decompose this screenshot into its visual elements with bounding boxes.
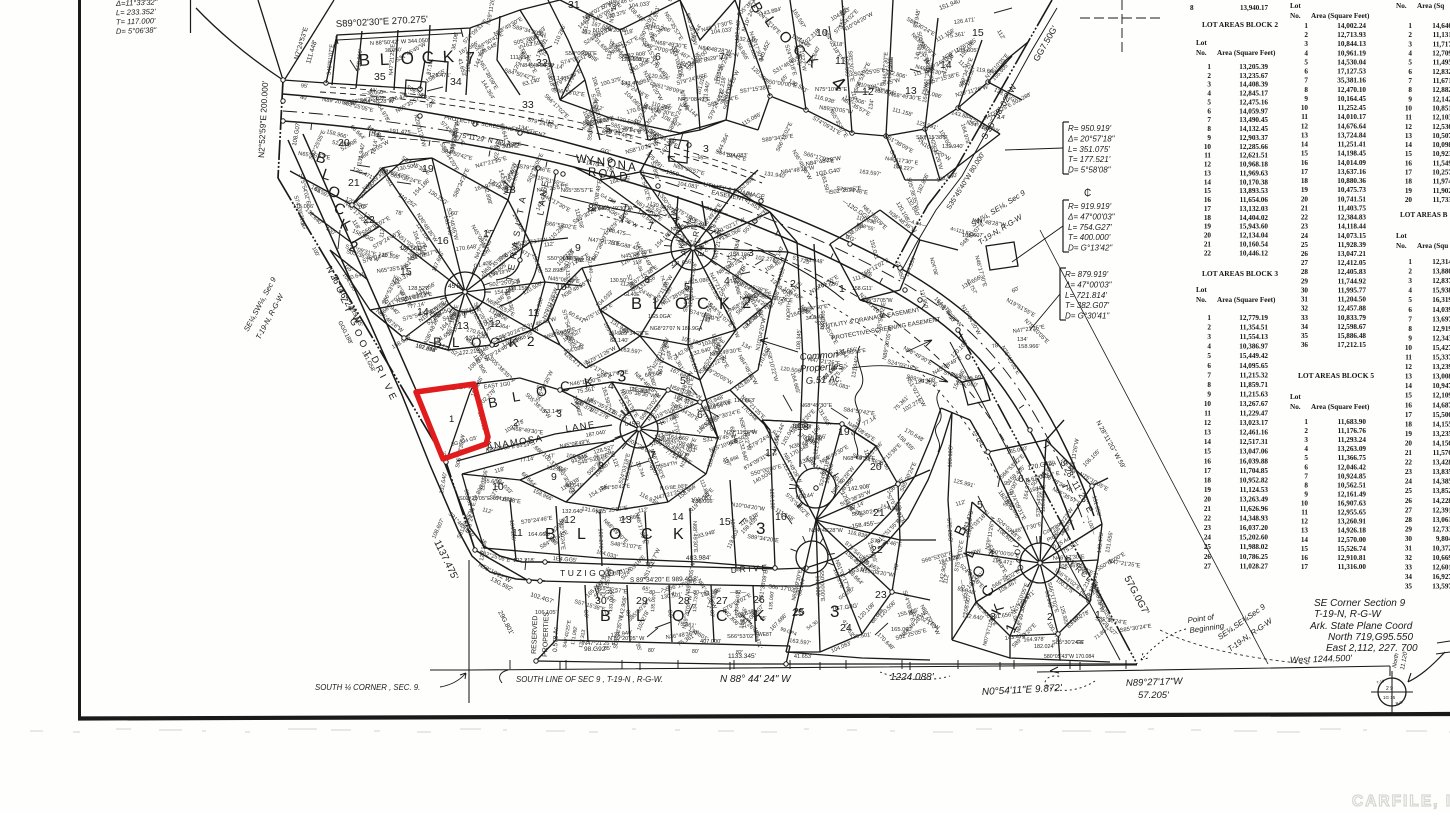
svg-text:7: 7 <box>1408 315 1412 323</box>
svg-text:11,176.76: 11,176.76 <box>1338 427 1367 435</box>
svg-text:Δ= 47°00'03": Δ= 47°00'03" <box>1067 212 1116 221</box>
svg-text:10,475.73: 10,475.73 <box>1337 186 1366 194</box>
svg-text:158.G11': 158.G11' <box>852 286 873 292</box>
svg-text:N89°27'17"W: N89°27'17"W <box>1126 676 1184 689</box>
svg-text:24: 24 <box>1405 478 1413 486</box>
svg-text:15,202.60: 15,202.60 <box>1239 534 1268 542</box>
svg-text:11: 11 <box>1204 410 1211 418</box>
svg-text:Area (Square Feet): Area (Square Feet) <box>1217 296 1276 304</box>
svg-text:78': 78' <box>606 167 614 174</box>
svg-text:L= 754.G27': L= 754.G27' <box>1068 223 1112 232</box>
svg-text:14,010.17: 14,010.17 <box>1337 113 1366 121</box>
svg-text:10,386.97: 10,386.97 <box>1239 343 1268 351</box>
svg-text:11: 11 <box>1405 114 1412 122</box>
svg-text:12: 12 <box>1405 363 1413 371</box>
svg-text:11,229.47: 11,229.47 <box>1240 410 1269 418</box>
svg-text:17,212.15: 17,212.15 <box>1337 341 1366 349</box>
svg-text:12,285.66: 12,285.66 <box>1239 143 1268 151</box>
svg-text:3: 3 <box>703 143 709 155</box>
svg-text:22: 22 <box>1301 214 1309 222</box>
svg-text:Ark. State Plane Coord: Ark. State Plane Coord <box>1309 621 1413 632</box>
svg-text:78': 78' <box>425 103 433 110</box>
svg-text:14: 14 <box>1301 536 1309 544</box>
svg-text:10,741.51: 10,741.51 <box>1337 195 1366 203</box>
svg-text:35,381.16: 35,381.16 <box>1337 77 1366 85</box>
svg-text:21: 21 <box>1204 240 1212 248</box>
svg-text:25: 25 <box>1204 543 1212 551</box>
svg-text:120.108': 120.108' <box>768 488 775 510</box>
svg-text:2: 2 <box>1408 268 1412 276</box>
svg-text:20: 20 <box>1405 440 1413 448</box>
svg-text:RESERVED: RESERVED <box>531 615 539 654</box>
svg-text:8: 8 <box>1207 381 1211 389</box>
svg-text:4: 4 <box>1304 445 1308 453</box>
svg-text:N65°35'57"E: N65°35'57"E <box>561 188 593 194</box>
svg-text:S66°53'02"E: S66°53'02"E <box>727 634 759 640</box>
svg-text:11,131: 11,131 <box>1433 31 1450 39</box>
svg-text:21: 21 <box>348 177 360 189</box>
svg-text:15: 15 <box>1405 392 1413 400</box>
svg-text:Y: Y <box>586 156 594 168</box>
svg-text:05': 05' <box>760 616 767 622</box>
svg-text:11,704.85: 11,704.85 <box>1240 467 1269 475</box>
svg-text:12,903.37: 12,903.37 <box>1239 134 1268 142</box>
svg-text:32: 32 <box>1301 305 1309 313</box>
svg-text:2: 2 <box>1207 324 1211 332</box>
svg-text:LOT AREAS BLOCK 5: LOT AREAS BLOCK 5 <box>1298 371 1374 380</box>
svg-text:13,205.39: 13,205.39 <box>1239 63 1268 71</box>
svg-text:SOUTH LINE OF SEC 9 , T-: SOUTH LINE OF SEC 9 , T-19-N , R-G-W. <box>516 675 663 684</box>
svg-text:K: K <box>673 526 684 543</box>
svg-text:22: 22 <box>1204 249 1212 257</box>
svg-text:North 719,G95.550: North 719,G95.550 <box>1328 632 1413 643</box>
svg-text:₵: ₵ <box>1084 187 1091 199</box>
svg-text:13,880: 13,880 <box>1432 268 1450 276</box>
svg-text:7: 7 <box>1304 77 1308 85</box>
svg-text:10,947: 10,947 <box>1432 382 1450 390</box>
svg-text:10: 10 <box>1301 104 1309 112</box>
svg-text:14,095.65: 14,095.65 <box>1239 362 1268 370</box>
svg-text:N: N <box>597 157 605 169</box>
svg-text:32: 32 <box>1405 554 1413 562</box>
svg-text:11,654.06: 11,654.06 <box>1240 196 1269 204</box>
svg-text:16: 16 <box>1301 159 1309 167</box>
svg-text:65': 65' <box>642 586 650 593</box>
svg-text:11,683.90: 11,683.90 <box>1338 418 1367 426</box>
svg-text:13,047.06: 13,047.06 <box>1239 448 1268 456</box>
svg-text:20: 20 <box>1301 195 1309 203</box>
svg-text:N: N <box>618 160 626 172</box>
svg-text:10,160.54: 10,160.54 <box>1239 240 1268 248</box>
svg-text:12,837: 12,837 <box>1432 277 1450 285</box>
svg-text:10: 10 <box>1204 143 1212 151</box>
svg-text:15,938: 15,938 <box>1432 287 1450 295</box>
svg-text:12,103: 12,103 <box>1432 114 1450 122</box>
svg-text:14: 14 <box>1204 438 1212 446</box>
svg-text:L: L <box>577 526 586 543</box>
svg-text:33: 33 <box>1301 314 1309 322</box>
svg-text:11,549: 11,549 <box>1433 159 1450 167</box>
svg-text:13,724.84: 13,724.84 <box>1337 131 1366 139</box>
svg-text:12,713.93: 12,713.93 <box>1337 31 1366 39</box>
svg-text:22: 22 <box>1204 515 1212 523</box>
svg-text:—G01'—: —G01'— <box>680 296 700 302</box>
svg-text:12,955.65: 12,955.65 <box>1337 509 1366 517</box>
svg-text:10,257: 10,257 <box>1432 169 1450 177</box>
svg-text:11,988.02: 11,988.02 <box>1240 543 1269 551</box>
svg-text:9: 9 <box>551 471 557 483</box>
svg-text:18: 18 <box>1405 420 1413 428</box>
svg-text:80': 80' <box>708 610 714 618</box>
svg-text:10,833.79: 10,833.79 <box>1337 314 1366 322</box>
svg-text:10,923: 10,923 <box>1432 150 1450 158</box>
svg-text:34: 34 <box>450 76 462 88</box>
svg-text:16,907.63: 16,907.63 <box>1337 500 1366 508</box>
svg-text:16: 16 <box>1204 196 1212 204</box>
svg-text:6: 6 <box>1207 362 1211 370</box>
svg-text:78': 78' <box>893 563 900 571</box>
svg-text:15,886.48: 15,886.48 <box>1337 332 1366 340</box>
svg-text:2: 2 <box>1304 31 1308 39</box>
svg-text:D= 5°58'08": D= 5°58'08" <box>1068 166 1112 175</box>
svg-text:132.640': 132.640' <box>562 509 584 515</box>
svg-text:1: 1 <box>1408 22 1412 30</box>
svg-text:26: 26 <box>1204 553 1212 561</box>
svg-text:6: 6 <box>1304 463 1308 471</box>
svg-text:19: 19 <box>838 426 850 438</box>
svg-text:10,851: 10,851 <box>1432 104 1450 112</box>
svg-text:10,961.19: 10,961.19 <box>1337 49 1366 57</box>
svg-text:10,880.36: 10,880.36 <box>1337 177 1366 185</box>
svg-text:14,676.64: 14,676.64 <box>1337 122 1366 130</box>
svg-text:10,669: 10,669 <box>1432 554 1450 562</box>
svg-text:15,427: 15,427 <box>1432 344 1450 352</box>
svg-text:12,405.83: 12,405.83 <box>1337 268 1366 276</box>
svg-text:4: 4 <box>1207 343 1211 351</box>
svg-text:15: 15 <box>972 27 984 39</box>
svg-text:13,263.09: 13,263.09 <box>1337 445 1366 453</box>
svg-text:12,391: 12,391 <box>1432 506 1450 514</box>
svg-text:12,570.00: 12,570.00 <box>1337 536 1366 544</box>
svg-text:12,134.04: 12,134.04 <box>1239 232 1268 240</box>
svg-text:14,348.93: 14,348.93 <box>1239 515 1268 523</box>
svg-text:2 9: 2 9 <box>1386 686 1393 692</box>
svg-text:12,779.19: 12,779.19 <box>1239 314 1268 322</box>
svg-text:14,926.18: 14,926.18 <box>1337 527 1366 535</box>
svg-text:13,852: 13,852 <box>1432 487 1450 495</box>
svg-text:23: 23 <box>1405 468 1413 476</box>
svg-text:T-19-N, R-G-W: T-19-N, R-G-W <box>1314 609 1382 620</box>
svg-text:483.984': 483.984' <box>686 555 711 562</box>
svg-text:13,239: 13,239 <box>1432 363 1450 371</box>
svg-text:L: L <box>452 335 460 350</box>
svg-text:16: 16 <box>1301 554 1309 562</box>
svg-text:3: 3 <box>1207 81 1211 89</box>
svg-text:10,924.85: 10,924.85 <box>1337 472 1366 480</box>
svg-text:15: 15 <box>1301 545 1309 553</box>
svg-text:12,475.16: 12,475.16 <box>1239 99 1268 107</box>
svg-text:19: 19 <box>1301 186 1309 194</box>
svg-text:29: 29 <box>1405 525 1413 533</box>
svg-text:Lot: Lot <box>1196 39 1207 47</box>
svg-text:25: 25 <box>793 606 805 618</box>
svg-text:18: 18 <box>1405 178 1413 186</box>
svg-text:4: 4 <box>1408 287 1412 295</box>
svg-text:11,403.75: 11,403.75 <box>1338 204 1367 212</box>
svg-text:14,646: 14,646 <box>1432 22 1450 30</box>
svg-text:12: 12 <box>1204 161 1212 169</box>
svg-text:17: 17 <box>1204 467 1212 475</box>
svg-text:11,928.39: 11,928.39 <box>1338 241 1367 249</box>
svg-text:34: 34 <box>1301 323 1309 331</box>
svg-text:1: 1 <box>449 414 454 425</box>
svg-text:N84°48'28"W: N84°48'28"W <box>809 528 843 534</box>
svg-text:R= 879.919': R= 879.919' <box>1065 270 1109 279</box>
svg-text:9: 9 <box>1408 334 1412 342</box>
svg-text:106.105': 106.105' <box>535 610 557 616</box>
svg-text:27: 27 <box>1405 506 1413 514</box>
svg-text:LOT AREAS B: LOT AREAS B <box>1400 211 1448 219</box>
svg-text:11,495: 11,495 <box>1433 59 1450 67</box>
svg-text:30: 30 <box>1301 287 1309 295</box>
svg-text:9: 9 <box>1304 95 1308 103</box>
svg-text:40': 40' <box>300 95 308 102</box>
svg-text:11,028.27: 11,028.27 <box>1240 562 1269 570</box>
svg-text:12,709: 12,709 <box>1432 50 1450 58</box>
svg-text:80': 80' <box>692 649 699 655</box>
svg-text:34: 34 <box>1405 573 1413 581</box>
svg-text:11,204.50: 11,204.50 <box>1338 296 1367 304</box>
svg-text:13,597: 13,597 <box>1432 583 1450 591</box>
svg-text:16,927: 16,927 <box>1432 573 1450 581</box>
svg-text:No.: No. <box>1396 2 1407 10</box>
svg-text:11,717: 11,717 <box>1433 40 1450 48</box>
svg-text:16: 16 <box>1405 159 1413 167</box>
svg-text:11,859.71: 11,859.71 <box>1240 381 1269 389</box>
svg-text:14,155: 14,155 <box>1432 420 1450 428</box>
svg-text:10,446.12: 10,446.12 <box>1239 249 1268 257</box>
svg-text:CARFILE, INC: CARFILE, INC <box>1352 793 1450 810</box>
svg-text:35: 35 <box>374 71 386 83</box>
svg-text:16: 16 <box>1405 401 1413 409</box>
svg-text:7: 7 <box>1207 116 1211 124</box>
svg-text:D= G°30'41": D= G°30'41" <box>1065 312 1110 321</box>
svg-text:10,372: 10,372 <box>1432 545 1450 553</box>
svg-text:3: 3 <box>1408 40 1412 48</box>
svg-text:13: 13 <box>1301 527 1309 535</box>
svg-text:Lot: Lot <box>1290 2 1301 10</box>
svg-text:Area (Square Feet): Area (Square Feet) <box>1311 12 1370 20</box>
svg-text:23: 23 <box>1301 223 1309 231</box>
svg-text:17,127.53: 17,127.53 <box>1337 68 1366 76</box>
svg-text:31: 31 <box>1405 545 1413 553</box>
svg-text:27: 27 <box>1204 562 1212 570</box>
svg-text:20: 20 <box>1204 496 1212 504</box>
svg-text:10,170.38: 10,170.38 <box>1239 178 1268 186</box>
svg-text:12,412.05: 12,412.05 <box>1337 259 1366 267</box>
svg-text:12,046.42: 12,046.42 <box>1337 463 1366 471</box>
svg-text:111.158': 111.158' <box>510 55 531 61</box>
svg-text:12,109: 12,109 <box>1432 392 1450 400</box>
svg-text:11: 11 <box>512 527 523 539</box>
svg-text:126.471': 126.471' <box>429 73 451 79</box>
svg-text:2: 2 <box>1207 72 1211 80</box>
svg-text:11,995.77: 11,995.77 <box>1338 287 1367 295</box>
svg-text:No.: No. <box>1290 12 1301 20</box>
svg-text:14,014.09: 14,014.09 <box>1337 159 1366 167</box>
svg-text:14,002.24: 14,002.24 <box>1337 22 1366 30</box>
svg-text:25: 25 <box>1405 487 1413 495</box>
svg-text:SE Corner Section 9: SE Corner Section 9 <box>1314 598 1406 609</box>
svg-text:Area (Square Feet): Area (Square Feet) <box>1311 403 1370 411</box>
svg-text:Area (Sq: Area (Sq <box>1417 2 1444 10</box>
svg-text:1133.345': 1133.345' <box>728 653 756 660</box>
svg-text:T= 177.521': T= 177.521' <box>1068 155 1111 164</box>
svg-text:26: 26 <box>1301 250 1309 258</box>
svg-text:7: 7 <box>1207 371 1211 379</box>
svg-text:11,251.41: 11,251.41 <box>1338 141 1367 149</box>
svg-text:0.578 Ac.: 0.578 Ac. <box>552 625 560 653</box>
svg-text:24: 24 <box>1204 534 1212 542</box>
svg-text:9,804: 9,804 <box>1436 535 1450 543</box>
svg-text:L= 721.814': L= 721.814' <box>1065 291 1107 300</box>
svg-text:13,260.91: 13,260.91 <box>1337 518 1366 526</box>
svg-text:6: 6 <box>1408 68 1412 76</box>
svg-text:16,319: 16,319 <box>1432 296 1450 304</box>
svg-text:No.: No. <box>1290 403 1301 411</box>
svg-text:30: 30 <box>1405 535 1413 543</box>
svg-text:1: 1 <box>1408 258 1412 266</box>
svg-text:3: 3 <box>748 247 754 259</box>
svg-text:78': 78' <box>991 343 999 350</box>
svg-text:N84°48'28"W: N84°48'28"W <box>520 63 554 69</box>
svg-text:35: 35 <box>1301 332 1309 340</box>
svg-text:R= 950.919': R= 950.919' <box>1068 124 1112 133</box>
svg-text:14,404.02: 14,404.02 <box>1239 214 1268 222</box>
svg-text:17: 17 <box>1405 169 1413 177</box>
svg-text:116.938': 116.938' <box>1040 491 1047 512</box>
svg-text:11: 11 <box>1301 113 1308 121</box>
svg-text:12,384.83: 12,384.83 <box>1337 214 1366 222</box>
svg-text:10: 10 <box>1405 104 1413 112</box>
svg-text:11,354.51: 11,354.51 <box>1240 324 1269 332</box>
svg-text:13,428: 13,428 <box>1432 459 1450 467</box>
svg-text:SOUTH ¼ CORNER , SEC. 9.: SOUTH ¼ CORNER , SEC. 9. <box>315 683 420 692</box>
svg-text:14,228: 14,228 <box>1432 497 1450 505</box>
svg-text:18: 18 <box>1204 476 1212 484</box>
svg-text:27: 27 <box>1301 259 1309 267</box>
svg-text:12: 12 <box>1405 123 1413 131</box>
svg-text:17: 17 <box>483 228 495 240</box>
svg-text:13,267.67: 13,267.67 <box>1239 400 1268 408</box>
svg-text:C: C <box>421 48 434 68</box>
svg-text:13,023.17: 13,023.17 <box>1239 419 1268 427</box>
svg-text:D= 5°06'38": D= 5°06'38" <box>116 25 157 35</box>
svg-text:14: 14 <box>1405 141 1413 149</box>
svg-text:13,008: 13,008 <box>1432 373 1450 381</box>
svg-text:8: 8 <box>598 460 604 472</box>
svg-text:13,235.67: 13,235.67 <box>1239 72 1268 80</box>
svg-text:12,601: 12,601 <box>1432 564 1450 572</box>
svg-text:25: 25 <box>1301 241 1309 249</box>
svg-text:33: 33 <box>522 99 534 111</box>
svg-text:13,490.45: 13,490.45 <box>1239 116 1268 124</box>
svg-text:11,215.63: 11,215.63 <box>1240 390 1269 398</box>
svg-text:16: 16 <box>437 235 449 247</box>
svg-text:12,832: 12,832 <box>1432 68 1450 76</box>
svg-text:138.066': 138.066' <box>692 499 714 505</box>
svg-text:57.205': 57.205' <box>1138 690 1170 701</box>
svg-text:Lot: Lot <box>1396 232 1407 240</box>
svg-text:5: 5 <box>1304 59 1308 67</box>
svg-text:3: 3 <box>1207 333 1211 341</box>
svg-text:17: 17 <box>1204 205 1212 213</box>
svg-text:12,536: 12,536 <box>1432 123 1450 131</box>
svg-text:Δ= 47°00'03": Δ= 47°00'03" <box>1064 280 1113 289</box>
svg-text:N 88° 44' 24" W: N 88° 44' 24" W <box>720 674 792 685</box>
svg-text:19: 19 <box>1405 430 1413 438</box>
svg-text:165.060': 165.060' <box>891 627 913 633</box>
svg-text:10,098: 10,098 <box>1432 141 1450 149</box>
svg-text:11,969.63: 11,969.63 <box>1240 169 1269 177</box>
svg-text:5: 5 <box>1207 99 1211 107</box>
svg-text:9: 9 <box>1408 95 1412 103</box>
svg-text:15,337: 15,337 <box>1432 354 1450 362</box>
svg-text:13,047.21: 13,047.21 <box>1337 250 1366 258</box>
svg-text:3: 3 <box>1304 40 1308 48</box>
svg-text:12,470.10: 12,470.10 <box>1337 86 1366 94</box>
svg-text:12,882: 12,882 <box>1432 86 1450 94</box>
svg-text:11: 11 <box>1405 354 1412 362</box>
svg-text:16,037.20: 16,037.20 <box>1239 524 1268 532</box>
svg-text:10,507: 10,507 <box>1432 132 1450 140</box>
svg-text:11,293.24: 11,293.24 <box>1338 436 1367 444</box>
svg-text:No.: No. <box>1196 296 1207 304</box>
svg-text:2: 2 <box>1304 427 1308 435</box>
svg-text:16: 16 <box>1204 457 1212 465</box>
svg-text:12,733: 12,733 <box>1432 525 1450 533</box>
svg-text:11,733: 11,733 <box>1433 196 1450 204</box>
svg-text:142.908': 142.908' <box>814 575 821 596</box>
svg-text:28: 28 <box>1405 516 1413 524</box>
svg-text:12: 12 <box>1301 122 1309 130</box>
svg-text:4: 4 <box>1408 50 1412 58</box>
svg-text:13,697: 13,697 <box>1432 315 1450 323</box>
svg-text:12,142: 12,142 <box>1432 95 1450 103</box>
svg-text:G0': G0' <box>582 609 588 618</box>
svg-text:13,061: 13,061 <box>1432 516 1450 524</box>
svg-text:13,893.53: 13,893.53 <box>1239 187 1268 195</box>
svg-text:7: 7 <box>648 220 654 232</box>
svg-text:8: 8 <box>1304 481 1308 489</box>
svg-text:11,215.32: 11,215.32 <box>1240 371 1269 379</box>
svg-text:14,059.97: 14,059.97 <box>1239 107 1268 115</box>
svg-text:52.898': 52.898' <box>545 268 563 274</box>
svg-text:4: 4 <box>1304 49 1308 57</box>
svg-text:1: 1 <box>1304 418 1308 426</box>
svg-text:5: 5 <box>1408 59 1412 67</box>
svg-text:T= 400.000': T= 400.000' <box>1068 233 1111 242</box>
svg-text:14,687: 14,687 <box>1432 401 1450 409</box>
svg-text:36: 36 <box>1301 341 1309 349</box>
svg-text:102.278': 102.278' <box>597 528 604 550</box>
svg-text:13,940.17: 13,940.17 <box>1240 4 1269 12</box>
svg-text:Area (Squ: Area (Squ <box>1417 242 1448 250</box>
svg-text:12,919: 12,919 <box>1432 325 1450 333</box>
svg-text:78': 78' <box>395 210 403 217</box>
svg-text:24: 24 <box>1301 232 1309 240</box>
svg-text:12: 12 <box>1301 518 1309 526</box>
